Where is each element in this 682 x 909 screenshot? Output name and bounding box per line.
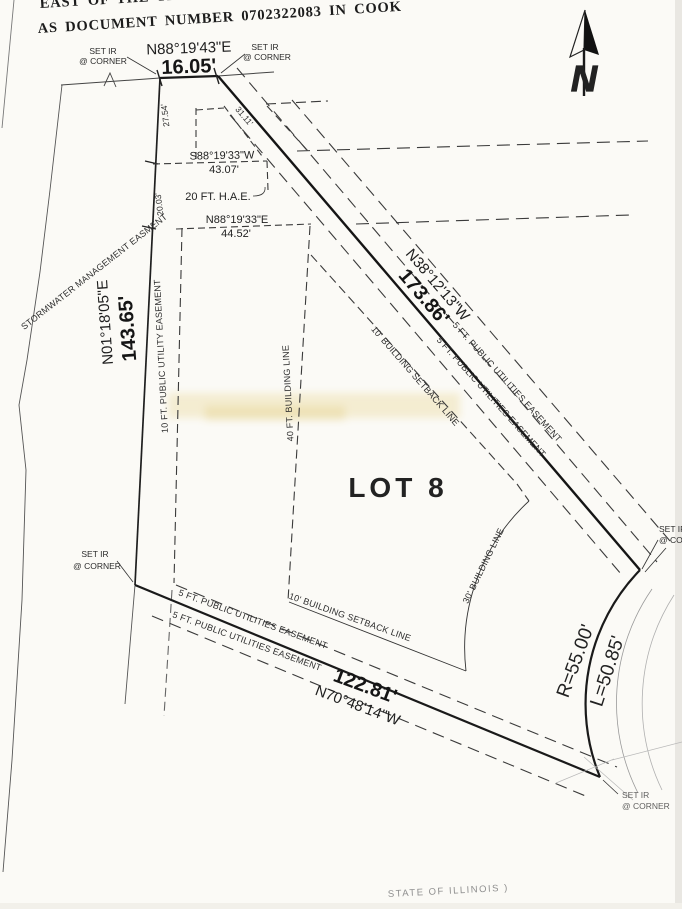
west-line-extension bbox=[125, 585, 135, 704]
at-corner-label: @ CORNER bbox=[243, 52, 291, 62]
page-crease-line bbox=[2, 0, 14, 128]
marker-set-ir-top-left: SET IR @ CORNER bbox=[79, 46, 127, 66]
set-ir-label: SET IR bbox=[89, 46, 116, 56]
page-edge-right bbox=[675, 0, 682, 909]
marker-set-ir-southeast: SET IR @ CORNER bbox=[622, 790, 670, 811]
page-edge-bottom bbox=[0, 903, 682, 909]
set-ir-label: SET IR bbox=[622, 790, 649, 800]
plat-drawing: N EAST OF THE THIRD P AS DOCUMENT NUMBER… bbox=[0, 0, 682, 909]
label-west-bearing: N01°18'05"E bbox=[94, 279, 117, 365]
label-pue-10ft: 10 FT. PUBLIC UTILITY EASEMENT bbox=[152, 279, 170, 433]
label-hae-south-distance: 44.52' bbox=[221, 228, 251, 240]
marker-set-ir-southwest: SET IR @ CORNER bbox=[73, 549, 121, 571]
at-corner-label: @ CORNER bbox=[622, 801, 670, 811]
at-corner-label: @ CORNER bbox=[79, 56, 127, 66]
stormwater-easement-west-line bbox=[3, 85, 62, 872]
header-line1: EAST OF THE THIRD P bbox=[39, 0, 225, 12]
label-hae-south-bearing: N88°19'33"E bbox=[206, 214, 268, 226]
street-curb-arc-1 bbox=[616, 589, 652, 793]
lot-label: LOT 8 bbox=[348, 472, 447, 503]
adjacent-dashed-h1 bbox=[297, 141, 648, 151]
label-building-line-30ft: 30' BUILDING LINE bbox=[461, 526, 506, 605]
pue-5ft-ne-inner bbox=[230, 115, 621, 574]
adjacent-dashed-h0 bbox=[266, 101, 328, 104]
set-ir-label: SET IR bbox=[81, 549, 108, 559]
north-letter: N bbox=[571, 58, 598, 99]
north-arrow: N bbox=[570, 10, 599, 99]
street-line-right bbox=[218, 72, 274, 76]
footer-line: STATE OF ILLINOIS ) bbox=[388, 883, 509, 900]
label-hae: 20 FT. H.A.E. bbox=[185, 191, 250, 203]
label-hae-north-bearing: S88°19'33"W bbox=[189, 149, 255, 162]
street-curb-arc-2 bbox=[642, 595, 674, 790]
label-pue-5ft-ne-1: 5 FT. PUBLIC UTILITIES EASEMENT bbox=[451, 320, 564, 444]
label-stormwater-easement: STORMWATER MANAGEMENT EASMENT bbox=[19, 211, 169, 331]
at-corner-label: @ CORNER bbox=[73, 561, 121, 571]
label-west-distance: 143.65' bbox=[115, 295, 142, 362]
north-arrow-left-half bbox=[570, 10, 585, 57]
hae-east-line bbox=[267, 161, 268, 190]
north-arrow-right-half bbox=[584, 10, 599, 55]
street-line-left bbox=[61, 78, 160, 85]
scanned-plat-page: N EAST OF THE THIRD P AS DOCUMENT NUMBER… bbox=[0, 0, 682, 909]
label-hae-north-distance: 43.07' bbox=[209, 164, 239, 176]
setback-10ft-ne-elbow bbox=[517, 484, 529, 501]
line-break-symbol bbox=[104, 73, 116, 87]
marker-set-ir-top-right: SET IR @ CORNER bbox=[243, 42, 291, 62]
label-seg-27-54: 27.54' bbox=[159, 103, 172, 127]
pue-10ft-extension bbox=[164, 590, 172, 716]
leader-lines bbox=[117, 54, 666, 794]
adjacent-dashed-h2 bbox=[356, 215, 630, 224]
highlighter-smear bbox=[168, 393, 460, 420]
set-ir-label: SET IR bbox=[659, 524, 682, 534]
at-corner-label: @ CORNER bbox=[659, 535, 682, 545]
hae-top-line bbox=[196, 108, 224, 110]
set-ir-label: SET IR bbox=[251, 42, 278, 52]
label-north-distance: 16.05' bbox=[161, 55, 217, 79]
label-hae-tie: 31.11' bbox=[233, 104, 255, 128]
marker-set-ir-east: SET IR @ CORNER bbox=[659, 524, 682, 545]
